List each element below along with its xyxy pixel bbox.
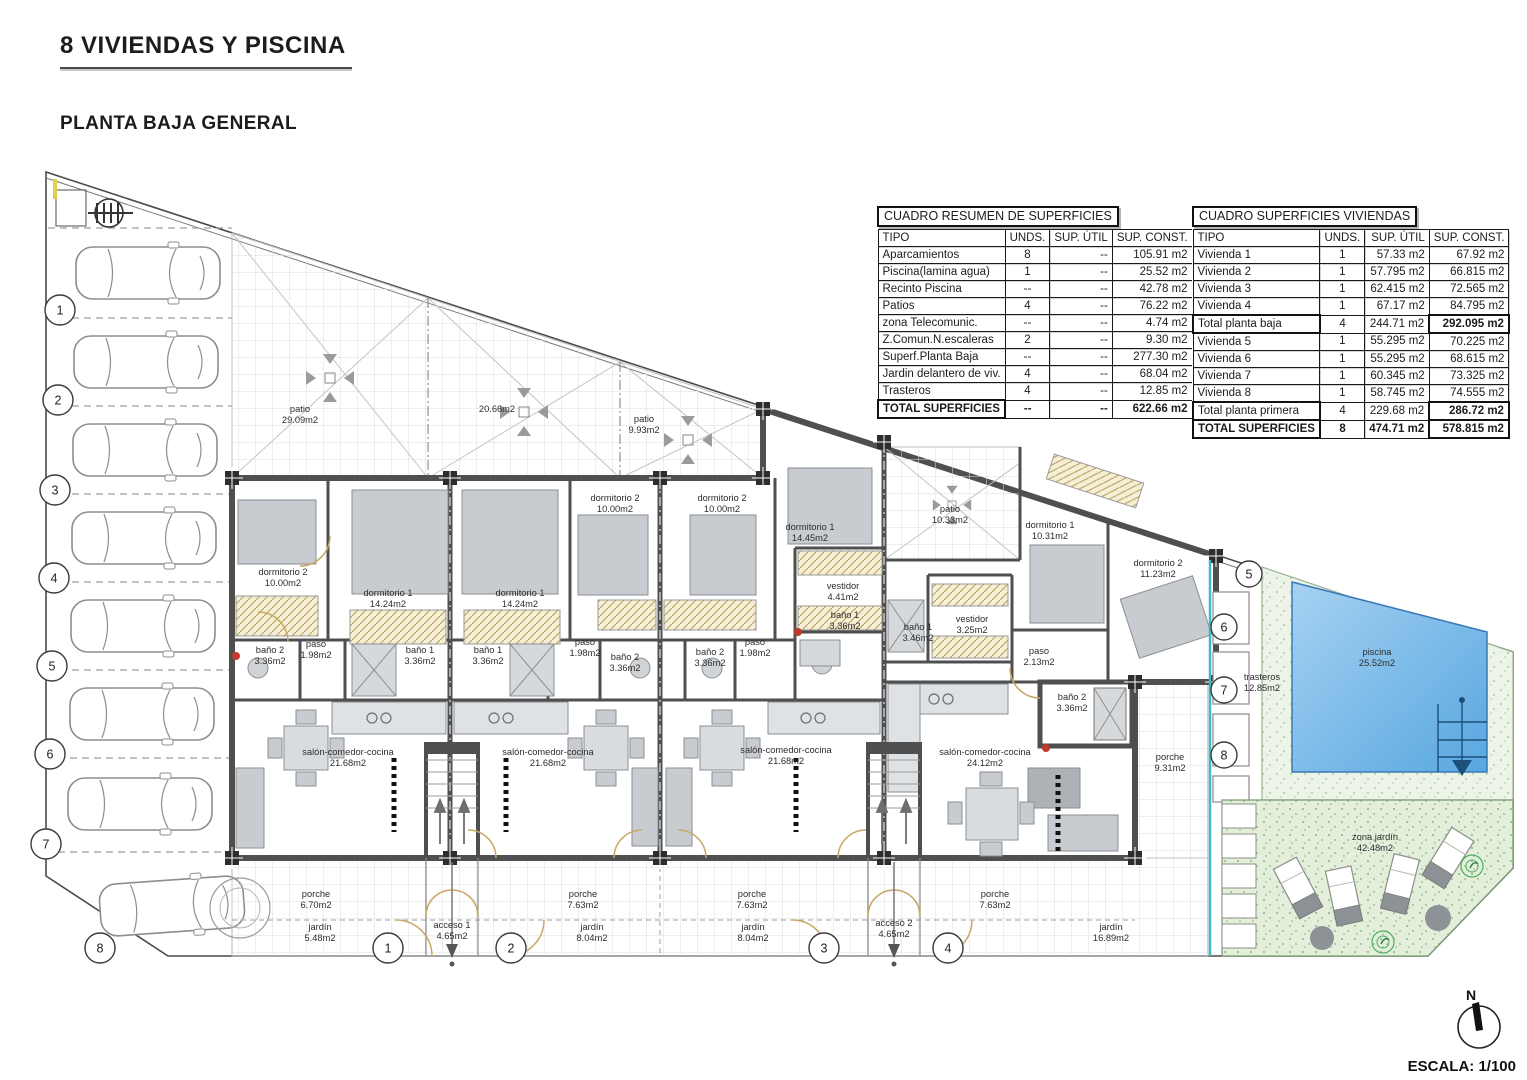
room-label: baño 1 xyxy=(904,622,932,632)
access-number: 3 xyxy=(821,942,828,956)
col-unds: UNDS. xyxy=(1005,230,1050,247)
room-label: paso xyxy=(1029,646,1049,656)
table-header-row: TIPO UNDS. SUP. ÚTIL SUP. CONST. xyxy=(878,230,1192,247)
room-label: salón-comedor-cocina xyxy=(302,747,394,757)
room-label: trasteros xyxy=(1244,672,1281,682)
svg-text:21.68m2: 21.68m2 xyxy=(530,758,566,768)
svg-text:14.24m2: 14.24m2 xyxy=(370,599,406,609)
svg-text:14.24m2: 14.24m2 xyxy=(502,599,538,609)
svg-text:10.00m2: 10.00m2 xyxy=(265,578,301,588)
room-label: dormitorio 1 xyxy=(1025,520,1074,530)
room-label: 20.66m2 xyxy=(479,404,515,414)
svg-text:7.63m2: 7.63m2 xyxy=(567,900,598,910)
room-label: porche xyxy=(738,889,766,899)
room-label: paso xyxy=(306,639,326,649)
room-label: dormitorio 2 xyxy=(590,493,639,503)
room-label: patio xyxy=(940,504,960,514)
table-row: Patios4--76.22 m2 xyxy=(878,298,1192,315)
svg-text:3.36m2: 3.36m2 xyxy=(829,621,860,631)
parking-number: 1 xyxy=(57,304,64,318)
parking-number: 6 xyxy=(47,748,54,762)
room-label: acceso 2 xyxy=(875,918,912,928)
svg-text:24.12m2: 24.12m2 xyxy=(967,758,1003,768)
svg-text:4.65m2: 4.65m2 xyxy=(878,929,909,939)
room-label: baño 2 xyxy=(611,652,639,662)
svg-text:8.04m2: 8.04m2 xyxy=(576,933,607,943)
north-compass-icon: N xyxy=(1458,987,1500,1048)
svg-text:1.98m2: 1.98m2 xyxy=(569,648,600,658)
room-label: dormitorio 2 xyxy=(697,493,746,503)
svg-text:3.36m2: 3.36m2 xyxy=(609,663,640,673)
col-tipo: TIPO xyxy=(1193,230,1320,247)
table-row: Vivienda 7160.345 m273.325 m2 xyxy=(1193,368,1509,385)
room-label: baño 2 xyxy=(256,645,284,655)
room-label: baño 1 xyxy=(831,610,859,620)
svg-text:9.31m2: 9.31m2 xyxy=(1154,763,1185,773)
room-label: zona jardín xyxy=(1352,832,1398,842)
table-total-row: TOTAL SUPERFICIES----622.66 m2 xyxy=(878,400,1192,418)
svg-text:29.09m2: 29.09m2 xyxy=(282,415,318,425)
svg-text:42.48m2: 42.48m2 xyxy=(1357,843,1393,853)
room-label: vestidor xyxy=(827,581,860,591)
svg-text:8.04m2: 8.04m2 xyxy=(737,933,768,943)
room-label: porche xyxy=(569,889,597,899)
room-label: porche xyxy=(981,889,1009,899)
room-label: patio xyxy=(634,414,654,424)
room-label: dormitorio 1 xyxy=(363,588,412,598)
svg-text:3.46m2: 3.46m2 xyxy=(902,633,933,643)
table-row: Vivienda 6155.295 m268.615 m2 xyxy=(1193,351,1509,368)
patio-zone xyxy=(232,233,763,478)
room-label: jardín xyxy=(579,922,603,932)
room-label: baño 2 xyxy=(696,647,724,657)
room-label: porche xyxy=(1156,752,1184,762)
svg-text:12.85m2: 12.85m2 xyxy=(1244,683,1280,693)
svg-text:3.36m2: 3.36m2 xyxy=(254,656,285,666)
dwellings-table: CUADRO SUPERFICIES VIVIENDAS TIPO UNDS. … xyxy=(1192,206,1448,439)
room-label: patio xyxy=(290,404,310,414)
svg-text:3.36m2: 3.36m2 xyxy=(404,656,435,666)
table-row: Piscina(lamina agua)1--25.52 m2 xyxy=(878,264,1192,281)
svg-text:7.63m2: 7.63m2 xyxy=(736,900,767,910)
svg-text:1.98m2: 1.98m2 xyxy=(300,650,331,660)
col-unds: UNDS. xyxy=(1320,230,1365,247)
room-label: salón-comedor-cocina xyxy=(740,745,832,755)
access-number: 2 xyxy=(508,942,515,956)
trastero-number: 6 xyxy=(1221,621,1228,635)
room-label: piscina xyxy=(1363,647,1393,657)
pool-area xyxy=(1262,567,1513,800)
svg-text:11.23m2: 11.23m2 xyxy=(1140,569,1176,579)
room-label: baño 2 xyxy=(1058,692,1086,702)
table-row: Vivienda 2157.795 m266.815 m2 xyxy=(1193,264,1509,281)
trastero-number: 8 xyxy=(1221,749,1228,763)
room-label: paso xyxy=(745,637,765,647)
floor-plan-svg: patio29.09m2 20.66m2 patio9.93m2 patio10… xyxy=(0,0,1527,1080)
room-label: salón-comedor-cocina xyxy=(939,747,1031,757)
table-row: Vivienda 3162.415 m272.565 m2 xyxy=(1193,281,1509,298)
room-label: paso xyxy=(575,637,595,647)
col-const: SUP. CONST. xyxy=(1429,230,1509,247)
svg-text:10.31m2: 10.31m2 xyxy=(1032,531,1068,541)
svg-text:21.68m2: 21.68m2 xyxy=(330,758,366,768)
col-util: SUP. ÚTIL xyxy=(1050,230,1112,247)
parking-number: 5 xyxy=(49,660,56,674)
col-util: SUP. ÚTIL xyxy=(1365,230,1430,247)
col-tipo: TIPO xyxy=(878,230,1005,247)
scale-label: ESCALA: 1/100 xyxy=(1408,1058,1516,1075)
svg-text:3.36m2: 3.36m2 xyxy=(472,656,503,666)
svg-text:3.25m2: 3.25m2 xyxy=(956,625,987,635)
parking-number: 3 xyxy=(52,484,59,498)
table-row: Vivienda 1157.33 m267.92 m2 xyxy=(1193,247,1509,264)
table-header-row: TIPO UNDS. SUP. ÚTIL SUP. CONST. xyxy=(1193,230,1509,247)
table-subtotal-row: Total planta baja4244.71 m2292.095 m2 xyxy=(1193,315,1509,333)
room-label: acceso 1 xyxy=(433,920,470,930)
summary-table-title: CUADRO RESUMEN DE SUPERFICIES xyxy=(877,206,1119,227)
parking-number: 4 xyxy=(51,572,58,586)
svg-text:1.98m2: 1.98m2 xyxy=(739,648,770,658)
room-label: dormitorio 2 xyxy=(258,567,307,577)
room-label: jardín xyxy=(307,922,331,932)
table-total-row: TOTAL SUPERFICIES8474.71 m2578.815 m2 xyxy=(1193,420,1509,438)
room-label: dormitorio 2 xyxy=(1133,558,1182,568)
trastero-number: 5 xyxy=(1246,568,1253,582)
parking-number: 7 xyxy=(43,838,50,852)
room-label: vestidor xyxy=(956,614,989,624)
col-const: SUP. CONST. xyxy=(1112,230,1192,247)
svg-text:10.00m2: 10.00m2 xyxy=(597,504,633,514)
svg-text:21.68m2: 21.68m2 xyxy=(768,756,804,766)
table-subtotal-row: Total planta primera4229.68 m2286.72 m2 xyxy=(1193,402,1509,420)
svg-text:5.48m2: 5.48m2 xyxy=(304,933,335,943)
pool xyxy=(1292,582,1487,772)
svg-text:6.70m2: 6.70m2 xyxy=(300,900,331,910)
room-label: dormitorio 1 xyxy=(495,588,544,598)
table-row: Jardin delantero de viv.4--68.04 m2 xyxy=(878,366,1192,383)
table-row: Trasteros4--12.85 m2 xyxy=(878,383,1192,401)
room-label: dormitorio 1 xyxy=(785,522,834,532)
table-row: Vivienda 8158.745 m274.555 m2 xyxy=(1193,385,1509,403)
access-number: 1 xyxy=(385,942,392,956)
svg-text:2.13m2: 2.13m2 xyxy=(1023,657,1054,667)
table-row: Vivienda 5155.295 m270.225 m2 xyxy=(1193,333,1509,351)
svg-text:4.41m2: 4.41m2 xyxy=(827,592,858,602)
garden-area xyxy=(1222,800,1513,956)
svg-text:3.36m2: 3.36m2 xyxy=(1056,703,1087,713)
table-row: Aparcamientos8--105.91 m2 xyxy=(878,247,1192,264)
svg-text:10.33m2: 10.33m2 xyxy=(932,515,968,525)
summary-table: CUADRO RESUMEN DE SUPERFICIES TIPO UNDS.… xyxy=(877,206,1135,419)
svg-text:10.00m2: 10.00m2 xyxy=(704,504,740,514)
table-row: Superf.Planta Baja----277.30 m2 xyxy=(878,349,1192,366)
table-row: Vivienda 4167.17 m284.795 m2 xyxy=(1193,298,1509,316)
trastero-number: 7 xyxy=(1221,684,1228,698)
svg-text:16.89m2: 16.89m2 xyxy=(1093,933,1129,943)
parking-number: 2 xyxy=(55,394,62,408)
room-label: jardín xyxy=(740,922,764,932)
north-label: N xyxy=(1466,987,1476,1003)
access-number: 4 xyxy=(945,942,952,956)
room-label: porche xyxy=(302,889,330,899)
floor-plan-page: 8 VIVIENDAS Y PISCINA PLANTA BAJA GENERA… xyxy=(0,0,1527,1080)
room-label: baño 1 xyxy=(406,645,434,655)
svg-text:3.36m2: 3.36m2 xyxy=(694,658,725,668)
parking-number: 8 xyxy=(97,942,104,956)
room-label: baño 1 xyxy=(474,645,502,655)
room-label: jardín xyxy=(1098,922,1122,932)
dwellings-table-title: CUADRO SUPERFICIES VIVIENDAS xyxy=(1192,206,1417,227)
table-row: zona Telecomunic.----4.74 m2 xyxy=(878,315,1192,332)
svg-text:25.52m2: 25.52m2 xyxy=(1359,658,1395,668)
table-row: Recinto Piscina----42.78 m2 xyxy=(878,281,1192,298)
svg-text:14.45m2: 14.45m2 xyxy=(792,533,828,543)
svg-text:4.65m2: 4.65m2 xyxy=(436,931,467,941)
table-row: Z.Comun.N.escaleras2--9.30 m2 xyxy=(878,332,1192,349)
room-label: salón-comedor-cocina xyxy=(502,747,594,757)
svg-text:9.93m2: 9.93m2 xyxy=(628,425,659,435)
svg-text:7.63m2: 7.63m2 xyxy=(979,900,1010,910)
